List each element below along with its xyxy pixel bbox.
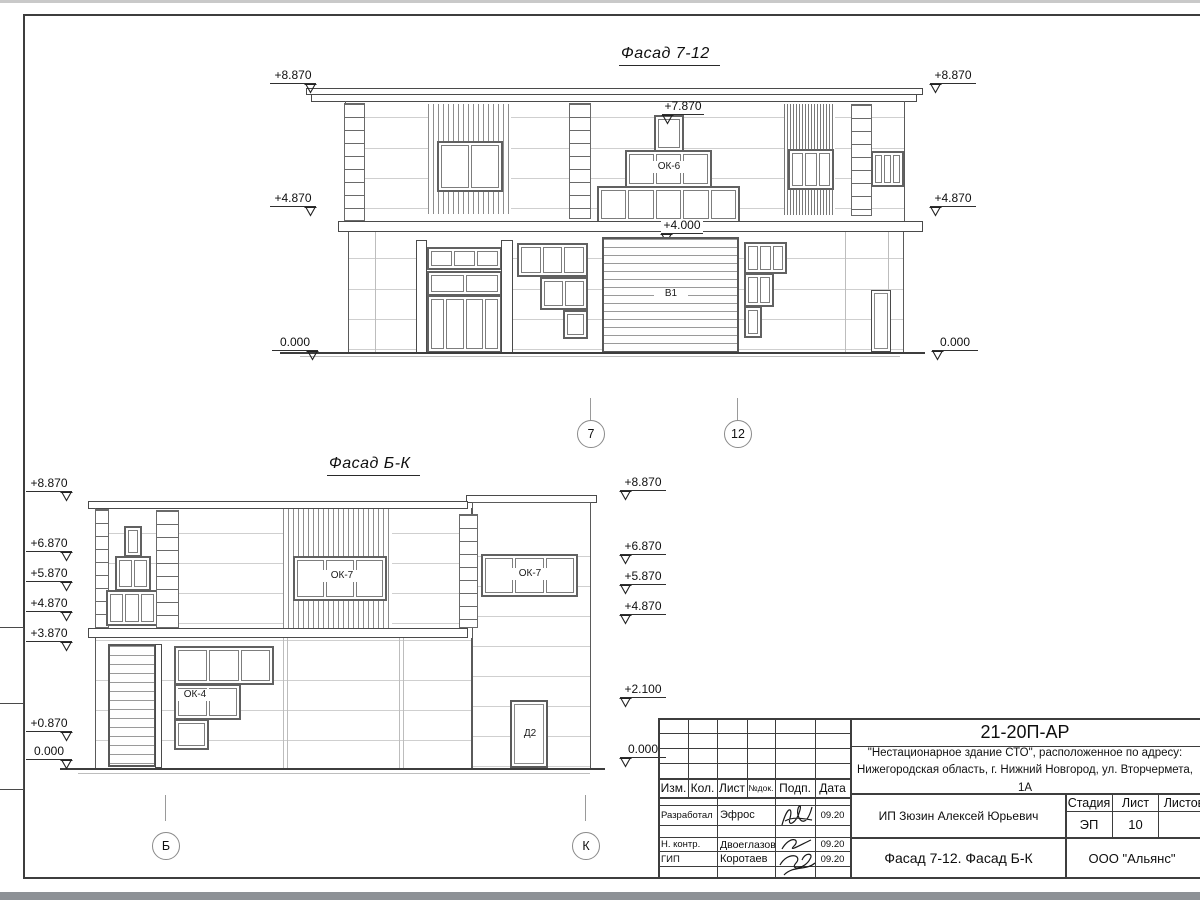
tb-name: Эфрос — [720, 806, 775, 824]
elevation-value: +8.870 — [934, 68, 971, 82]
level-arrow-icon — [60, 491, 73, 502]
tb-grid-line — [658, 866, 850, 867]
entrance-sign-band — [427, 247, 502, 270]
level-arrow-icon — [619, 584, 632, 595]
elevation-mark: 0.000 — [272, 336, 318, 351]
pyramid-window-row — [115, 556, 151, 591]
stage-header: Стадия — [1066, 794, 1112, 811]
quoin-column — [459, 514, 478, 628]
panel-joint — [375, 232, 376, 352]
entrance-transom — [427, 271, 502, 296]
elevation-mark: +3.870 — [26, 627, 72, 642]
door-d2-label: Д2 — [517, 728, 543, 740]
quoin-column — [569, 103, 591, 219]
frame-side-box — [0, 703, 24, 790]
ground-line-2 — [300, 356, 900, 357]
pilaster — [501, 240, 513, 353]
ground-line — [280, 352, 925, 354]
elevation-mark: +8.870 — [270, 69, 316, 84]
bottom-edge-bar — [0, 892, 1200, 900]
organization-name: ООО "Альянс" — [1066, 839, 1198, 877]
elevation-mark: +4.870 — [270, 192, 316, 207]
stepped-window-row — [563, 310, 588, 339]
project-address: "Нестационарное здание СТО", расположенн… — [852, 750, 1198, 792]
tb-grid-line — [658, 797, 850, 799]
elevation-value: +2.100 — [624, 682, 661, 696]
tb-name: Двоеглазов — [720, 838, 776, 851]
level-arrow-icon — [929, 206, 942, 217]
tb-date: 09.20 — [815, 806, 850, 824]
tb-col-data: Дата — [815, 779, 850, 797]
elevation-value: +7.870 — [664, 99, 701, 113]
ground-line — [60, 768, 605, 770]
stepped-window-row — [744, 306, 762, 338]
frame-bottom-line — [23, 877, 1200, 879]
level-arrow-icon — [304, 83, 317, 94]
elevation-value: +8.870 — [624, 475, 661, 489]
elevation-value: +4.870 — [934, 191, 971, 205]
elevation-value: +8.870 — [274, 68, 311, 82]
window-3pane — [871, 151, 904, 187]
tb-grid-line — [658, 748, 850, 749]
level-arrow-icon — [931, 350, 944, 361]
elevation-value: +5.870 — [30, 566, 67, 580]
level-arrow-icon — [60, 551, 73, 562]
tb-date: 09.20 — [815, 852, 850, 866]
drawing-sheet: Фасад 7-12 ОК-6 +7.870 +4.000 В1 +8.8 — [0, 0, 1200, 900]
axis-bubble-k: К — [572, 832, 600, 860]
window-3pane — [788, 149, 834, 190]
tb-col-list: Лист — [717, 779, 747, 797]
stepped-window-row — [744, 242, 787, 274]
elevation-mark: 0.000 — [26, 745, 72, 760]
elevation-value: +4.870 — [30, 596, 67, 610]
stepped-window-row — [517, 243, 588, 277]
stage-value: ЭП — [1066, 812, 1112, 836]
elevation-mark: +6.870 — [26, 537, 72, 552]
elevation-value: +4.870 — [274, 191, 311, 205]
project-address-line2: Нижегородская область, г. Нижний Новгоро… — [852, 762, 1198, 797]
elevation-mark: +5.870 — [26, 567, 72, 582]
level-arrow-icon — [60, 581, 73, 592]
elevation-value: 0.000 — [628, 742, 658, 756]
tb-role: Разработал — [661, 806, 717, 824]
facade-b-k-title: Фасад Б-К — [327, 455, 420, 476]
level-arrow-icon — [60, 641, 73, 652]
pyramid-window-row — [106, 590, 158, 626]
elevation-value: +6.870 — [624, 539, 661, 553]
axis-leader — [590, 398, 591, 421]
elevation-value: +4.000 — [663, 218, 700, 232]
panel-joint — [845, 232, 846, 352]
quoin-column — [851, 104, 872, 216]
floor-band — [88, 628, 468, 638]
tb-col-ndok: №док. — [747, 779, 775, 797]
window-ok4-row — [174, 719, 209, 750]
quoin-column — [156, 510, 179, 628]
stepped-window-row — [540, 277, 588, 310]
elevation-value: +8.870 — [30, 476, 67, 490]
level-arrow-icon — [306, 350, 319, 361]
tb-col-izm: Изм. — [659, 779, 688, 797]
axis-bubble-12: 12 — [724, 420, 752, 448]
tb-name: Коротаев — [720, 852, 776, 866]
level-arrow-icon — [60, 611, 73, 622]
level-arrow-icon — [661, 114, 674, 125]
panel-joint — [403, 638, 404, 768]
axis-leader — [585, 795, 586, 821]
tb-role: ГИП — [661, 852, 717, 866]
panel-joint — [287, 638, 288, 768]
axis-bubble-7: 7 — [577, 420, 605, 448]
level-arrow-icon — [60, 731, 73, 742]
axis-leader — [165, 795, 166, 821]
panel-joint — [283, 638, 284, 768]
pilaster — [155, 644, 162, 768]
elevation-value: +0.870 — [30, 716, 67, 730]
project-address-line1: "Нестационарное здание СТО", расположенн… — [852, 745, 1198, 762]
client-name: ИП Зюзин Алексей Юрьевич — [852, 795, 1065, 836]
level-arrow-icon — [60, 759, 73, 770]
top-edge-bar — [0, 0, 1200, 3]
elevation-mark: +8.870 — [930, 69, 976, 84]
stepped-window-row — [744, 273, 774, 307]
tb-col-podp: Подп. — [775, 779, 815, 797]
elevation-value: 0.000 — [940, 335, 970, 349]
window-ok7-left-label: ОК-7 — [321, 570, 363, 582]
elevation-mark: +4.000 — [661, 219, 703, 234]
elevation-value: +3.870 — [30, 626, 67, 640]
elevation-mark: +4.870 — [620, 600, 666, 615]
gate-b1-label: В1 — [654, 288, 688, 300]
elevation-mark: +8.870 — [620, 476, 666, 491]
elevation-mark: +4.870 — [26, 597, 72, 612]
level-arrow-icon — [929, 83, 942, 94]
axis-leader — [737, 398, 738, 421]
tb-role: Н. контр. — [661, 838, 717, 851]
level-arrow-icon — [619, 697, 632, 708]
panel-joint — [399, 638, 400, 768]
tb-date: 09.20 — [815, 838, 850, 851]
tb-col-kol: Кол. — [688, 779, 717, 797]
level-arrow-icon — [619, 490, 632, 501]
signature-scribble — [776, 833, 818, 877]
elevation-mark: +5.870 — [620, 570, 666, 585]
window-ok4-row — [174, 646, 274, 685]
sheets-header: Листов — [1159, 794, 1200, 811]
level-arrow-icon — [619, 757, 632, 768]
elevation-value: 0.000 — [280, 335, 310, 349]
pyramid-window-row — [124, 526, 142, 557]
elevation-mark: 0.000 — [932, 336, 978, 351]
elevation-mark: +4.870 — [930, 192, 976, 207]
level-arrow-icon — [619, 614, 632, 625]
floor-band — [338, 221, 923, 232]
quoin-column — [344, 103, 365, 221]
level-arrow-icon — [304, 206, 317, 217]
elevation-value: 0.000 — [34, 744, 64, 758]
level-arrow-icon — [619, 554, 632, 565]
sheet-title: Фасад 7-12. Фасад Б-К — [852, 839, 1065, 877]
elevation-mark: +7.870 — [662, 100, 704, 115]
frame-side-box — [0, 627, 24, 704]
sheet-header: Лист — [1113, 794, 1158, 811]
tb-grid-line — [658, 825, 850, 826]
window-ok6-label: ОК-6 — [646, 161, 692, 173]
frame-top-line — [23, 14, 1200, 16]
elevation-mark: +6.870 — [620, 540, 666, 555]
elevation-value: +5.870 — [624, 569, 661, 583]
tb-grid-line — [658, 763, 850, 764]
roller-door — [108, 644, 156, 767]
pilaster — [416, 240, 427, 353]
project-code: 21-20П-АР — [852, 719, 1198, 746]
elevation-mark: +8.870 — [26, 477, 72, 492]
ground-line-2 — [78, 773, 590, 774]
facade-7-12-title: Фасад 7-12 — [619, 45, 720, 66]
elevation-mark: +0.870 — [26, 717, 72, 732]
sheet-number: 10 — [1113, 812, 1158, 836]
elevation-value: +4.870 — [624, 599, 661, 613]
narrow-door-leaf — [874, 293, 888, 349]
elevation-value: +6.870 — [30, 536, 67, 550]
elevation-mark: +2.100 — [620, 683, 666, 698]
axis-bubble-b: Б — [152, 832, 180, 860]
tb-grid-line — [658, 733, 850, 734]
window-2pane — [437, 141, 503, 192]
entrance-door — [427, 295, 502, 353]
signature-scribble — [778, 798, 816, 832]
window-ok4-label: ОК-4 — [178, 689, 212, 701]
window-ok7-right-label: ОК-7 — [509, 568, 551, 580]
